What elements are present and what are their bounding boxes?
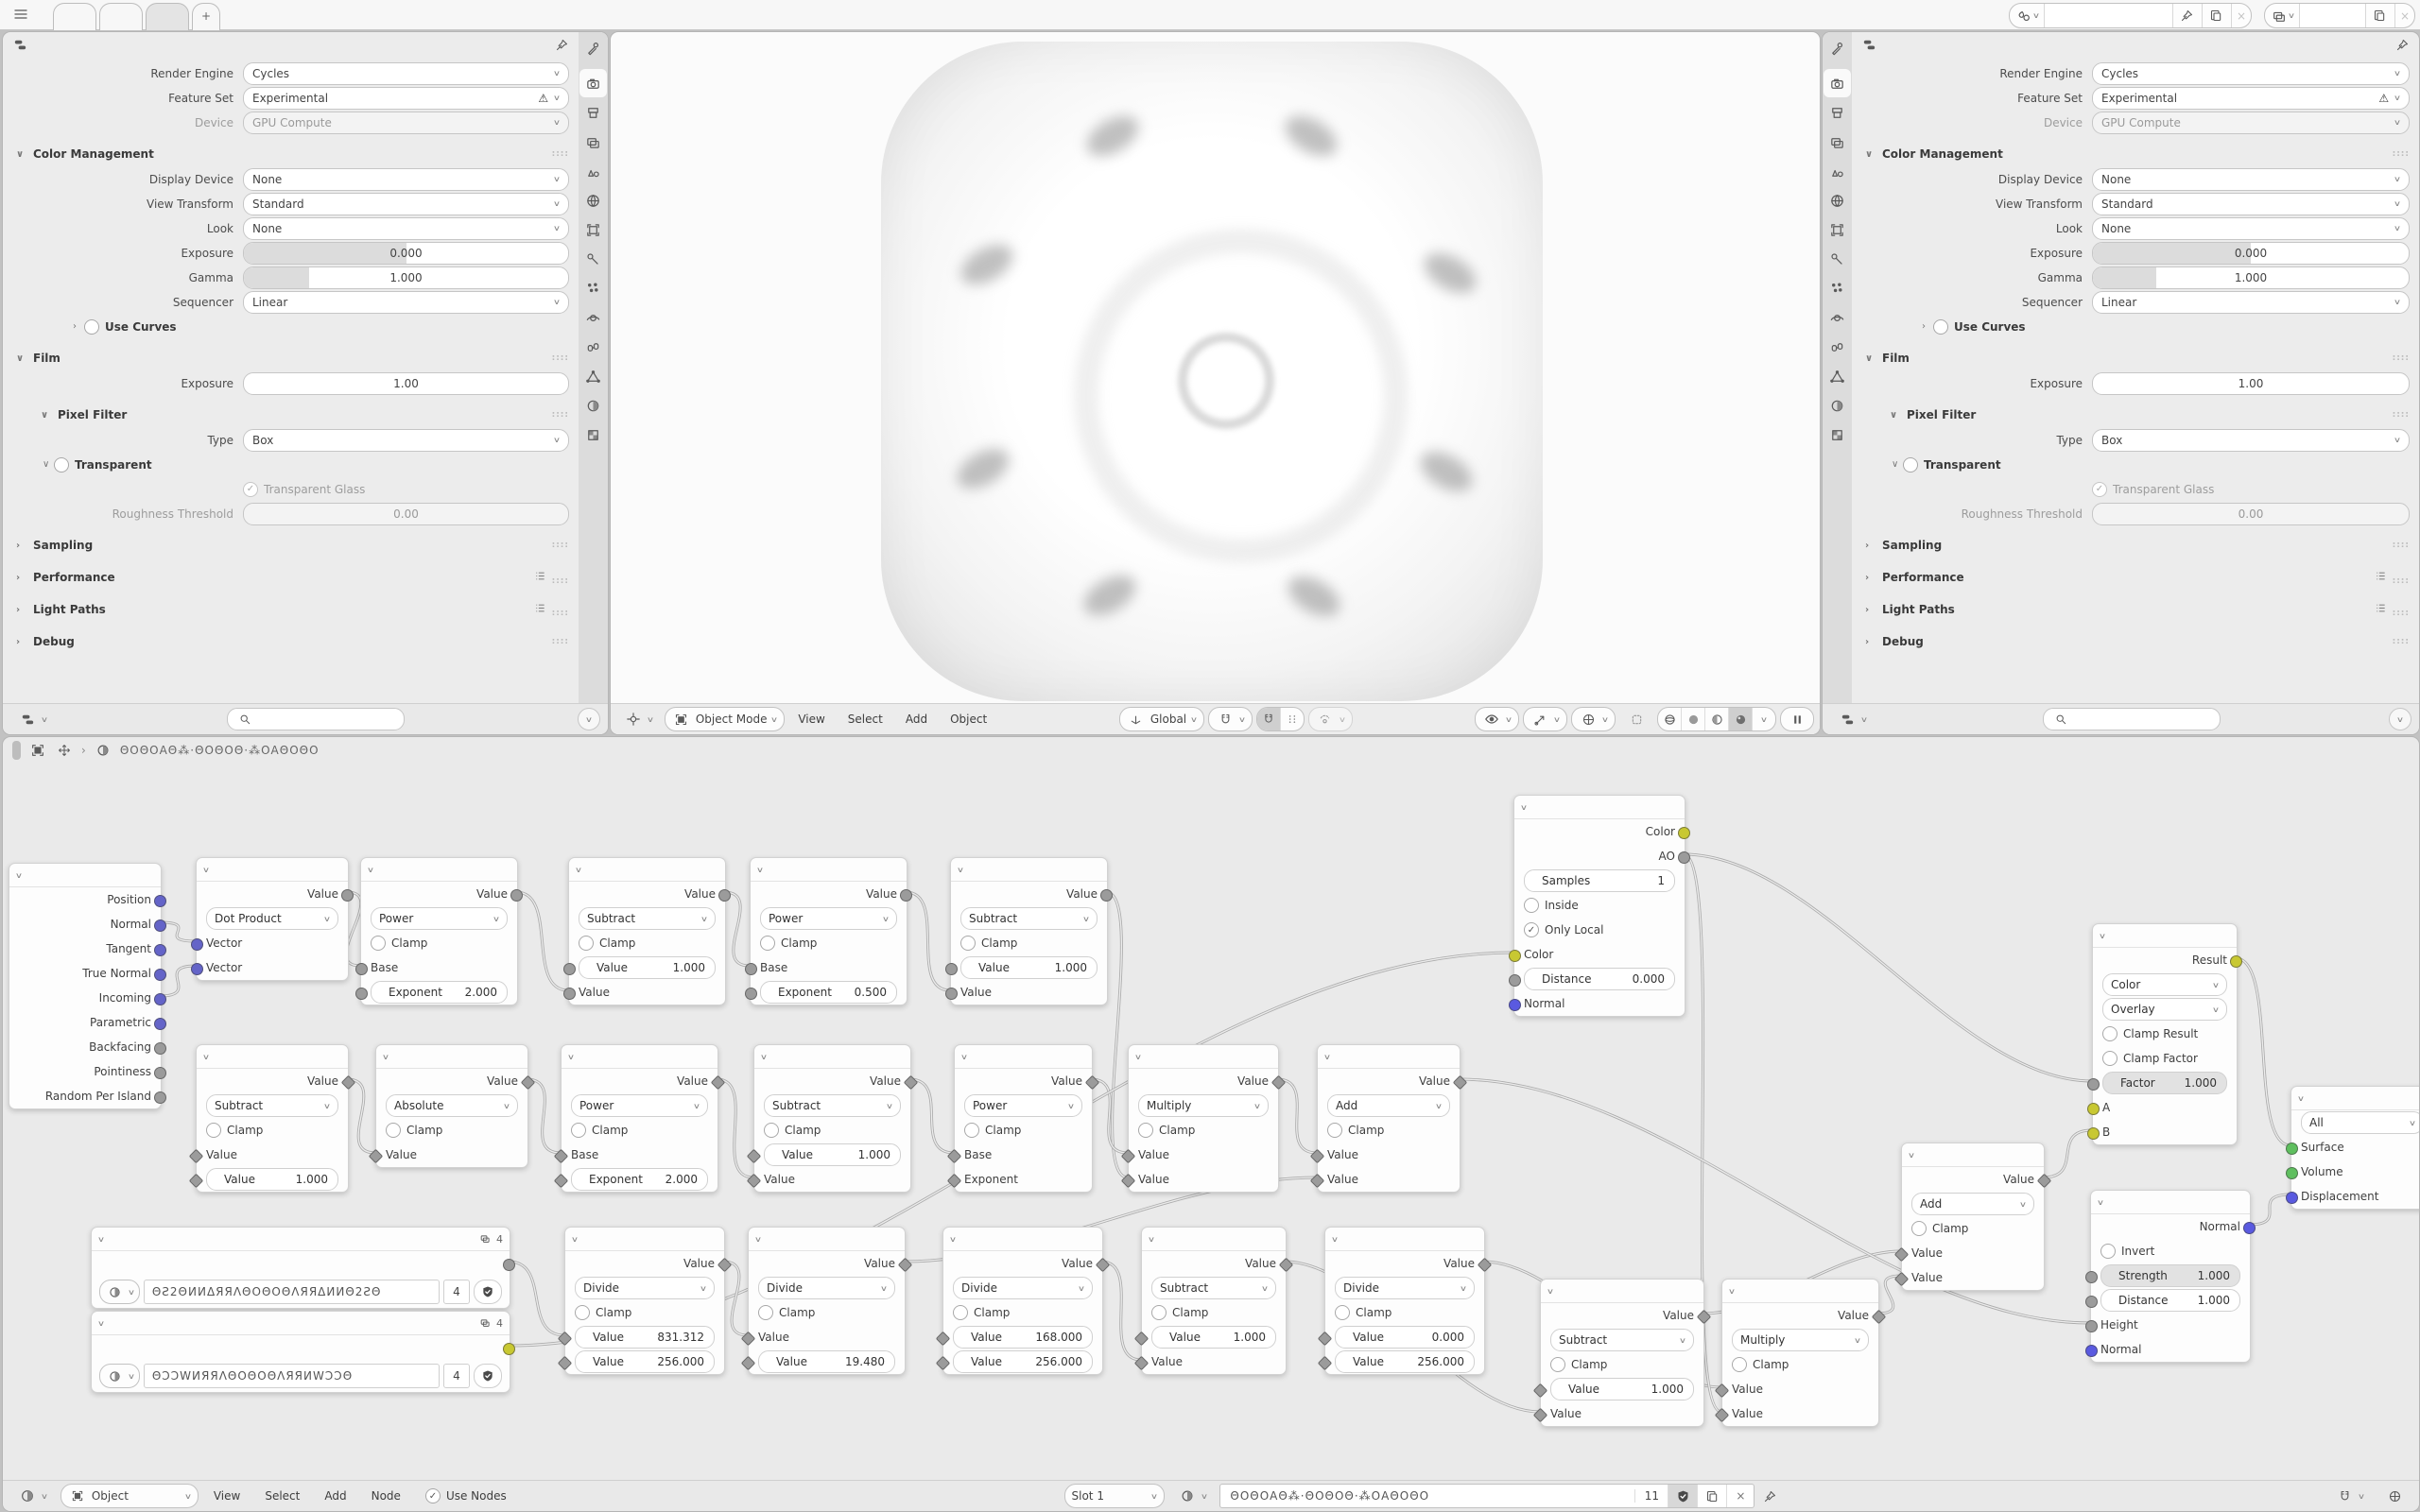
snap-node-toggle[interactable]: ∨ (2327, 1484, 2372, 1508)
section-sampling[interactable]: ›Sampling:::: (1858, 533, 2410, 558)
number-field[interactable]: Exponent2.000 (371, 981, 508, 1004)
socket[interactable] (745, 988, 757, 1000)
material-users-count[interactable]: 11 (1634, 1489, 1668, 1503)
region-handle[interactable] (12, 741, 21, 760)
new-scene-copy-icon[interactable] (2203, 4, 2232, 27)
value-field-factor[interactable]: Factor1.000 (2093, 1071, 2237, 1095)
prop-field-dropdown[interactable]: Linear∨ (2092, 291, 2410, 314)
collapse-icon[interactable]: ∨ (97, 1319, 105, 1328)
socket[interactable] (747, 1148, 762, 1163)
prop-field-dropdown[interactable]: GPU Compute∨ (243, 112, 569, 134)
shader-node-editor[interactable]: ›ΘΟΘΟAΘ⁂·ΘΟΘΟΘ·⁂ΟAΘΟΘΟ ∨PositionNormalTa… (2, 736, 2420, 1512)
value-field-exponent[interactable]: Exponent2.000 (361, 980, 517, 1005)
use-nodes-checkbox[interactable]: ✓Use Nodes (416, 1484, 516, 1508)
socket[interactable] (563, 963, 576, 975)
value-field-value[interactable]: Value256.000 (565, 1349, 724, 1374)
checkbox-clamp[interactable]: Clamp (197, 1118, 348, 1143)
socket[interactable] (745, 963, 757, 975)
checkbox[interactable] (953, 1305, 968, 1320)
collapse-icon[interactable]: ∨ (567, 1053, 575, 1061)
proportional-edit-dropdown[interactable]: ∨ (1308, 707, 1353, 731)
image-datablock-dropdown[interactable]: ∨ (99, 1280, 140, 1304)
checkbox[interactable] (1550, 1357, 1565, 1372)
shading-wireframe[interactable] (1658, 708, 1682, 730)
value-field-exponent[interactable]: Exponent0.500 (751, 980, 907, 1005)
collapse-icon[interactable]: ∨ (1728, 1287, 1736, 1296)
socket[interactable] (554, 1173, 569, 1188)
socket[interactable] (1509, 999, 1521, 1011)
remove-viewlayer-icon[interactable]: × (2395, 4, 2414, 27)
image-datablock-dropdown[interactable]: ∨ (99, 1364, 140, 1388)
checkbox[interactable] (1138, 1123, 1153, 1138)
collapse-icon[interactable]: ∨ (754, 1235, 762, 1244)
node-pb[interactable]: ∨ValuePower∨ClampBaseExponent2.000 (561, 1044, 718, 1193)
checkbox[interactable] (575, 1305, 590, 1320)
menu-object[interactable]: Object (941, 707, 996, 731)
number-field[interactable]: Value19.480 (758, 1350, 895, 1373)
socket[interactable] (154, 1067, 166, 1079)
node-out[interactable]: ∨All∨SurfaceVolumeDisplacement (2290, 1086, 2420, 1210)
shading-mode-group[interactable]: ∨ (1657, 707, 1776, 731)
datablock-users-count[interactable]: 4 (443, 1280, 470, 1304)
collapse-icon[interactable]: ∨ (2297, 1094, 2305, 1103)
node-d2[interactable]: ∨ValueDivide∨ClampValueValue19.480 (748, 1227, 906, 1375)
dropdown[interactable]: Divide∨ (953, 1277, 1093, 1299)
socket[interactable] (1533, 1383, 1548, 1398)
prop-field-value[interactable]: 0.00 (2092, 503, 2410, 525)
properties-tab-material[interactable] (1824, 391, 1851, 420)
value-field-value[interactable]: Value1.000 (197, 1167, 348, 1192)
prop-field-dropdown[interactable]: Linear∨ (243, 291, 569, 314)
search-input[interactable] (227, 708, 405, 730)
checkbox[interactable] (764, 1123, 779, 1138)
node-geo[interactable]: ∨PositionNormalTangentTrue NormalIncomin… (9, 863, 162, 1109)
socket[interactable] (1100, 889, 1113, 902)
checkbox-clamp[interactable]: Clamp (1722, 1352, 1878, 1377)
socket[interactable] (154, 1042, 166, 1055)
collapse-icon[interactable]: ∨ (2097, 1198, 2104, 1207)
properties-tab-images[interactable] (579, 128, 607, 156)
properties-tab-physics[interactable] (1824, 303, 1851, 332)
properties-tab-particles[interactable] (579, 274, 607, 302)
checkbox-only-local[interactable]: ✓Only Local (1514, 918, 1685, 942)
prop-field-dropdown[interactable]: None∨ (2092, 217, 2410, 240)
fake-user-shield-button[interactable] (474, 1364, 502, 1388)
socket[interactable] (945, 963, 958, 975)
prop-field-dropdown[interactable]: Experimental⚠∨ (243, 87, 569, 110)
number-field[interactable]: Value0.000 (1335, 1326, 1475, 1349)
menu-view[interactable]: View (788, 707, 834, 731)
properties-tab-wrench[interactable] (579, 245, 607, 273)
node-header[interactable]: ∨ (569, 858, 725, 882)
operation-dropdown[interactable]: Power∨ (361, 906, 517, 931)
node-pb2[interactable]: ∨ValuePower∨ClampBaseExponent (954, 1044, 1093, 1193)
socket[interactable] (2085, 1320, 2098, 1332)
prop-field-dropdown[interactable]: Experimental⚠∨ (2092, 87, 2410, 110)
socket[interactable] (947, 1148, 962, 1163)
shading-rendered[interactable] (1729, 708, 1753, 730)
dropdown[interactable]: Subtract∨ (1151, 1277, 1276, 1299)
socket[interactable] (900, 889, 912, 902)
options-button[interactable]: ∨ (2389, 708, 2411, 730)
socket[interactable] (2286, 1143, 2298, 1155)
new-material-copy-button[interactable] (1697, 1485, 1726, 1507)
socket[interactable] (503, 1259, 515, 1271)
mode-dropdown[interactable]: Object Mode∨ (665, 707, 785, 731)
toggle-use-curves[interactable]: ›Use Curves (9, 315, 569, 338)
socket[interactable] (154, 969, 166, 981)
section-light-paths[interactable]: ›Light Paths :::: (1858, 597, 2410, 622)
scene-icon[interactable]: ∨ (2010, 4, 2045, 27)
node-sd[interactable]: ∨ValueSubtract∨ClampValue1.000Value (1540, 1279, 1704, 1427)
menu-add[interactable]: Add (896, 707, 937, 731)
socket[interactable] (1509, 974, 1521, 987)
section-performance[interactable]: ›Performance :::: (9, 565, 569, 590)
socket[interactable] (1121, 1173, 1136, 1188)
checkbox[interactable] (2102, 1026, 2117, 1041)
checkbox-clamp[interactable]: Clamp (1902, 1216, 2044, 1241)
prop-field-dropdown[interactable]: Cycles∨ (2092, 62, 2410, 85)
node-ar[interactable]: ∨ValueAdd∨ClampValueValue (1901, 1143, 2045, 1291)
checkbox-inside[interactable]: Inside (1514, 893, 1685, 918)
socket[interactable] (1678, 851, 1690, 864)
socket[interactable] (154, 1091, 166, 1104)
socket[interactable] (2085, 1296, 2098, 1308)
shader-type-dropdown[interactable]: Object∨ (60, 1484, 199, 1508)
dropdown[interactable]: Power∨ (964, 1094, 1082, 1117)
node-sb1[interactable]: ∨ValueSubtract∨ClampValueValue1.000 (196, 1044, 349, 1193)
operation-dropdown[interactable]: Multiply∨ (1722, 1328, 1878, 1352)
node-header[interactable]: ∨ (2291, 1087, 2420, 1110)
socket[interactable] (154, 944, 166, 956)
socket[interactable] (558, 1331, 573, 1346)
socket[interactable] (2243, 1222, 2256, 1234)
socket[interactable] (711, 1074, 726, 1090)
checkbox-clamp[interactable]: Clamp (955, 1118, 1092, 1143)
node-canvas[interactable]: ∨PositionNormalTangentTrue NormalIncomin… (3, 764, 2419, 1481)
checkbox-clamp-factor[interactable]: Clamp Factor (2093, 1046, 2237, 1071)
socket[interactable] (191, 963, 203, 975)
checkbox[interactable] (206, 1123, 221, 1138)
pin-icon[interactable] (2173, 4, 2203, 27)
prop-field-dropdown[interactable]: Cycles∨ (243, 62, 569, 85)
gizmo-dropdown[interactable]: ∨ (1523, 707, 1567, 731)
socket[interactable] (747, 1173, 762, 1188)
checkbox-clamp[interactable]: Clamp (1129, 1118, 1278, 1143)
socket[interactable] (1134, 1331, 1149, 1346)
operation-dropdown[interactable]: Divide∨ (749, 1276, 905, 1300)
socket[interactable] (1478, 1257, 1493, 1272)
snap-grid-toggle[interactable] (1281, 708, 1304, 730)
dropdown[interactable]: Divide∨ (575, 1277, 715, 1299)
operation-dropdown[interactable]: Color∨ (2093, 972, 2237, 997)
section-pixel-filter[interactable]: ∨Pixel Filter:::: (9, 403, 569, 427)
node-header[interactable]: ∨ (1902, 1143, 2044, 1167)
pause-render-button[interactable] (1780, 707, 1814, 731)
value-field-value[interactable]: Value256.000 (943, 1349, 1102, 1374)
toggle-use-curves[interactable]: ›Use Curves (1858, 315, 2410, 338)
collapse-icon[interactable]: ∨ (202, 866, 210, 874)
viewport-3d[interactable]: ∨Object Mode∨ViewSelectAddObjectGlobal∨∨… (610, 31, 1821, 735)
node-header[interactable]: ∨ (754, 1045, 910, 1069)
editor-type-button[interactable]: ∨ (10, 707, 55, 731)
snap-dropdown[interactable]: ∨ (1208, 707, 1253, 731)
workspace-tab-2[interactable] (99, 3, 143, 30)
operation-dropdown[interactable]: Subtract∨ (1541, 1328, 1703, 1352)
socket[interactable] (369, 1148, 384, 1163)
editor-type-button[interactable]: ∨ (1830, 707, 1875, 731)
dropdown[interactable]: Subtract∨ (1550, 1329, 1694, 1351)
socket[interactable] (355, 963, 368, 975)
properties-tab-constraints[interactable] (1824, 333, 1851, 361)
node-header[interactable]: ∨ (943, 1228, 1102, 1251)
properties-tab-printer[interactable] (579, 98, 607, 127)
properties-tab-constraints[interactable] (579, 333, 607, 361)
section-pixel-filter[interactable]: ∨Pixel Filter:::: (1858, 403, 2410, 427)
number-field[interactable]: Value1.000 (1550, 1378, 1694, 1400)
operation-dropdown[interactable]: Absolute∨ (376, 1093, 527, 1118)
checkbox[interactable]: ✓ (1524, 922, 1539, 937)
viewlayer-selector[interactable]: ∨ × (2264, 3, 2415, 28)
checkbox-clamp[interactable]: Clamp (565, 1300, 724, 1325)
value-field-value[interactable]: Value0.000 (1325, 1325, 1484, 1349)
socket[interactable] (341, 1074, 356, 1090)
node-header[interactable]: ∨ (376, 1045, 527, 1069)
socket[interactable] (558, 1355, 573, 1370)
dropdown[interactable]: Power∨ (760, 907, 897, 930)
socket[interactable] (741, 1355, 756, 1370)
socket[interactable] (510, 889, 523, 902)
prop-field-value[interactable]: 1.00 (243, 372, 569, 395)
socket[interactable] (1509, 950, 1521, 962)
material-name-input[interactable]: ΘΟΘΟAΘ⁂·ΘΟΘΟΘ·⁂ΟAΘΟΘΟ (1220, 1489, 1634, 1503)
socket[interactable] (936, 1331, 951, 1346)
section-performance[interactable]: ›Performance :::: (1858, 565, 2410, 590)
dropdown[interactable]: Power∨ (371, 907, 508, 930)
menu-view[interactable]: View (204, 1484, 250, 1508)
socket[interactable] (1121, 1148, 1136, 1163)
pin-icon[interactable] (552, 35, 571, 54)
prop-field-dropdown[interactable]: GPU Compute∨ (2092, 112, 2410, 134)
checkbox-clamp[interactable]: Clamp (943, 1300, 1102, 1325)
section-film[interactable]: ∨Film:::: (1858, 346, 2410, 370)
checkbox-clamp[interactable]: Clamp (754, 1118, 910, 1143)
socket[interactable] (2087, 1103, 2100, 1115)
collapse-icon[interactable]: ∨ (756, 866, 764, 874)
section-light-paths[interactable]: ›Light Paths :::: (9, 597, 569, 622)
socket[interactable] (1894, 1271, 1910, 1286)
prop-field-dropdown[interactable]: None∨ (243, 217, 569, 240)
dropdown[interactable]: Color∨ (2102, 973, 2227, 996)
value-field-value[interactable]: Value1.000 (951, 955, 1107, 980)
workspace-tab-3-active[interactable] (146, 3, 189, 30)
socket[interactable] (191, 938, 203, 951)
number-field[interactable]: Value1.000 (579, 956, 716, 979)
node-abs[interactable]: ∨ValueAbsolute∨ClampValue (375, 1044, 528, 1168)
section-color-management[interactable]: ∨Color Management:::: (1858, 142, 2410, 166)
socket[interactable] (1310, 1148, 1325, 1163)
number-field[interactable]: Exponent2.000 (571, 1168, 708, 1191)
socket[interactable] (154, 1018, 166, 1030)
toggle-transparent[interactable]: ∨Transparent (9, 453, 569, 476)
dropdown[interactable]: Add∨ (1911, 1193, 2034, 1215)
dropdown[interactable]: Subtract∨ (579, 907, 716, 930)
socket[interactable] (189, 1148, 204, 1163)
prop-field-slider[interactable]: 0.000 (2092, 242, 2410, 265)
transform-orientation-dropdown[interactable]: Global∨ (1119, 707, 1204, 731)
socket[interactable] (718, 889, 731, 902)
checkbox[interactable] (1933, 319, 1948, 335)
checkbox-clamp-result[interactable]: Clamp Result (2093, 1022, 2237, 1046)
collapse-icon[interactable]: ∨ (960, 1053, 968, 1061)
node-s1[interactable]: ∨ValueSubtract∨ClampValue1.000Value (568, 857, 726, 1005)
checkbox-clamp[interactable]: Clamp (562, 1118, 717, 1143)
socket[interactable] (1318, 1331, 1333, 1346)
value-field-value[interactable]: Value831.312 (565, 1325, 724, 1349)
pin-icon[interactable] (1760, 1486, 1779, 1505)
node-header[interactable]: ∨ (562, 1045, 717, 1069)
properties-tab-object[interactable] (1824, 215, 1851, 244)
operation-dropdown[interactable]: Subtract∨ (569, 906, 725, 931)
check-transparent-glass[interactable]: ✓Transparent Glass (1858, 477, 2410, 501)
properties-tab-object[interactable] (579, 215, 607, 244)
socket[interactable] (1872, 1309, 1887, 1324)
dropdown[interactable]: Dot Product∨ (206, 907, 338, 930)
dropdown[interactable]: All∨ (2301, 1111, 2420, 1134)
value-field-value[interactable]: Value1.000 (754, 1143, 910, 1167)
checkbox[interactable] (964, 1123, 979, 1138)
number-field[interactable]: Value168.000 (953, 1326, 1093, 1349)
checkbox-clamp[interactable]: Clamp (1142, 1300, 1286, 1325)
dropdown[interactable]: Multiply∨ (1732, 1329, 1869, 1351)
value-field-value[interactable]: Value1.000 (1541, 1377, 1703, 1401)
node-mix[interactable]: ∨ResultColor∨Overlay∨Clamp ResultClamp F… (2092, 923, 2238, 1145)
socket[interactable] (521, 1074, 536, 1090)
properties-tab-tool[interactable] (1824, 34, 1851, 62)
socket[interactable] (898, 1257, 913, 1272)
checkbox-clamp[interactable]: Clamp (361, 931, 517, 955)
node-md[interactable]: ∨ValueMultiply∨ClampValueValue (1721, 1279, 1879, 1427)
overlays-dropdown[interactable]: ∨ (1571, 707, 1616, 731)
number-field[interactable]: Value256.000 (953, 1350, 1093, 1373)
visibility-dropdown[interactable]: ∨ (1475, 707, 1519, 731)
socket[interactable] (563, 988, 576, 1000)
operation-dropdown[interactable]: Subtract∨ (754, 1093, 910, 1118)
checkbox-clamp[interactable]: Clamp (951, 931, 1107, 955)
collapse-icon[interactable]: ∨ (1547, 1287, 1554, 1296)
node-header[interactable]: ∨ (565, 1228, 724, 1251)
socket[interactable] (554, 1148, 569, 1163)
socket[interactable] (2037, 1173, 2052, 1188)
checkbox-clamp[interactable]: Clamp (1318, 1118, 1460, 1143)
socket[interactable] (154, 895, 166, 907)
operation-dropdown[interactable]: Power∨ (562, 1093, 717, 1118)
socket[interactable] (1533, 1407, 1548, 1422)
value-field-value[interactable]: Value168.000 (943, 1325, 1102, 1349)
properties-tab-texture[interactable] (579, 421, 607, 449)
checkbox[interactable] (1524, 898, 1539, 913)
socket[interactable] (189, 1173, 204, 1188)
socket[interactable] (717, 1257, 733, 1272)
operation-dropdown[interactable]: Divide∨ (943, 1276, 1102, 1300)
workspace-tab-1[interactable] (53, 3, 96, 30)
dropdown[interactable]: Add∨ (1327, 1094, 1450, 1117)
number-field[interactable]: Distance0.000 (1524, 968, 1675, 990)
prop-field-value[interactable]: 1.00 (2092, 372, 2410, 395)
operation-dropdown[interactable]: Divide∨ (565, 1276, 724, 1300)
checkbox[interactable] (571, 1123, 586, 1138)
node-header[interactable]: ∨ (751, 858, 907, 882)
editor-type-button[interactable]: ∨ (616, 707, 661, 731)
properties-tab-data[interactable] (579, 362, 607, 390)
socket[interactable] (945, 988, 958, 1000)
number-field[interactable]: Distance1.000 (2100, 1289, 2240, 1312)
prop-field-slider[interactable]: 1.000 (243, 266, 569, 289)
value-field-value[interactable]: Value1.000 (1142, 1325, 1286, 1349)
prop-field-dropdown[interactable]: Standard∨ (2092, 193, 2410, 215)
dropdown[interactable]: Subtract∨ (764, 1094, 901, 1117)
checkbox[interactable]: ✓ (2092, 482, 2107, 497)
dropdown[interactable]: Overlay∨ (2102, 998, 2227, 1021)
node-header[interactable]: ∨ (1514, 796, 1685, 819)
prop-field-value[interactable]: 0.00 (243, 503, 569, 525)
xray-toggle[interactable] (1619, 707, 1653, 731)
properties-tab-particles[interactable] (1824, 274, 1851, 302)
snap-toggle-group[interactable] (1256, 707, 1305, 731)
checkbox[interactable] (386, 1123, 401, 1138)
socket[interactable] (1894, 1246, 1910, 1262)
operation-dropdown[interactable]: Add∨ (1318, 1093, 1460, 1118)
socket[interactable] (341, 889, 354, 902)
properties-tab-printer[interactable] (1824, 98, 1851, 127)
number-field[interactable]: Value1.000 (764, 1143, 901, 1166)
node-header[interactable]: ∨4 (92, 1228, 510, 1251)
prop-field-dropdown[interactable]: Box∨ (2092, 429, 2410, 452)
operation-dropdown[interactable]: Add∨ (1902, 1192, 2044, 1216)
fake-user-shield-button[interactable] (1668, 1485, 1697, 1507)
properties-tab-images[interactable] (1824, 128, 1851, 156)
number-field[interactable]: Value1.000 (960, 956, 1098, 979)
socket[interactable] (741, 1331, 756, 1346)
node-s2[interactable]: ∨ValueSubtract∨ClampValue1.000Value (950, 857, 1108, 1005)
prop-field-slider[interactable]: 1.000 (2092, 266, 2410, 289)
socket[interactable] (2230, 955, 2242, 968)
node-ab[interactable]: ∨ValueAdd∨ClampValueValue (1317, 1044, 1461, 1193)
properties-tab-scene[interactable] (579, 157, 607, 185)
operation-dropdown[interactable]: Subtract∨ (1142, 1276, 1286, 1300)
checkbox[interactable] (371, 936, 386, 951)
socket[interactable] (1279, 1257, 1294, 1272)
properties-tab-wrench[interactable] (1824, 245, 1851, 273)
prop-field-slider[interactable]: 0.000 (243, 242, 569, 265)
fake-user-shield-button[interactable] (474, 1280, 502, 1304)
collapse-icon[interactable]: ∨ (97, 1235, 105, 1244)
checkbox[interactable] (1335, 1305, 1350, 1320)
number-field[interactable]: Samples1 (1524, 869, 1675, 892)
socket[interactable] (1453, 1074, 1468, 1090)
datablock-name-input[interactable]: ΘƆƆWИЯЯΛΘΟΘΟΘΛЯЯИWƆƆΘ (144, 1364, 440, 1388)
socket[interactable] (355, 988, 368, 1000)
prop-field-dropdown[interactable]: None∨ (243, 168, 569, 191)
checkbox-clamp[interactable]: Clamp (749, 1300, 905, 1325)
collapse-icon[interactable]: ∨ (1134, 1053, 1142, 1061)
checkbox[interactable] (54, 457, 69, 472)
viewlayer-name-input[interactable] (2300, 4, 2366, 27)
app-menu-icon[interactable] (11, 5, 30, 24)
toggle-transparent[interactable]: ∨Transparent (1858, 453, 2410, 476)
number-field[interactable]: Factor1.000 (2102, 1072, 2227, 1094)
dropdown[interactable]: Divide∨ (1335, 1277, 1475, 1299)
